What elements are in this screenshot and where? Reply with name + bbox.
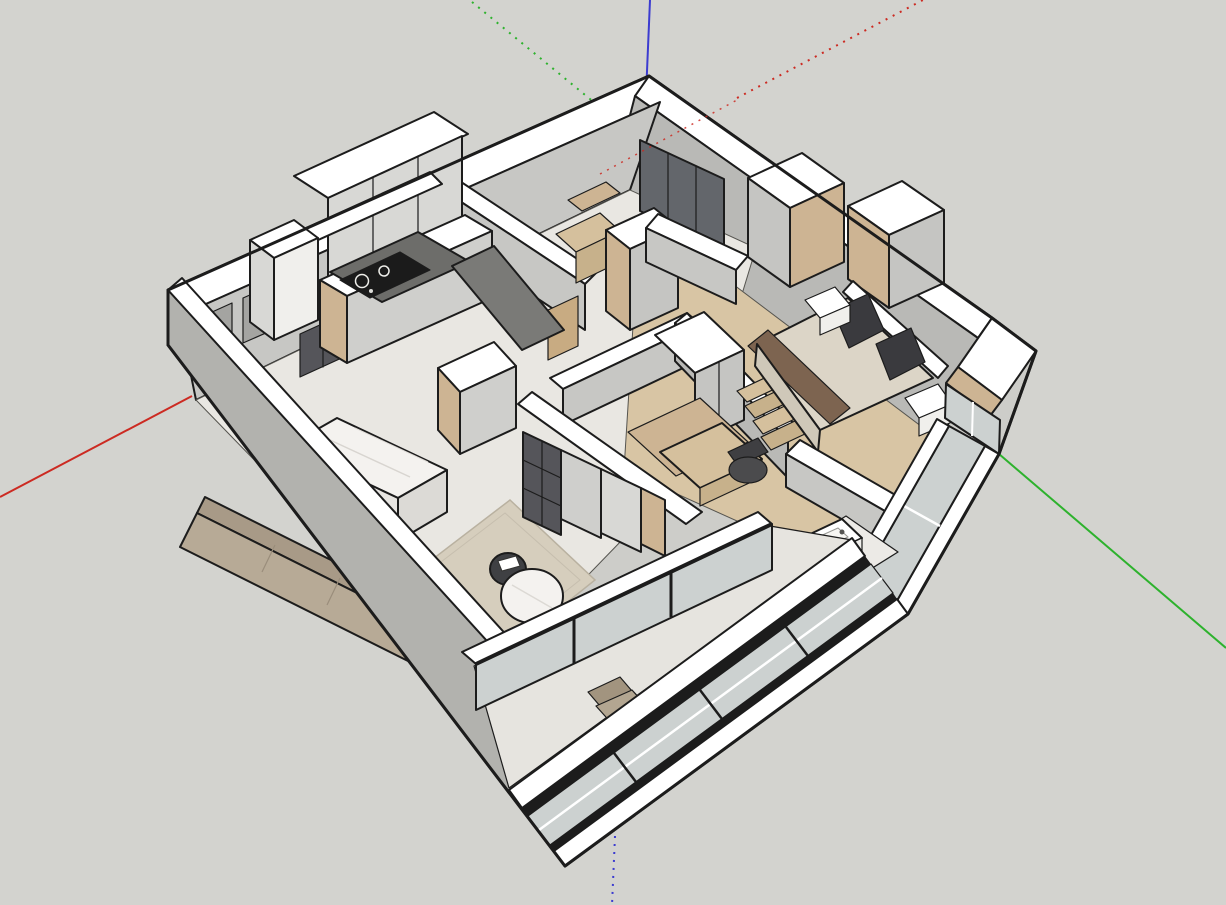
closet-side[interactable] — [606, 230, 630, 330]
base-cabinet-side[interactable] — [320, 280, 347, 363]
faucet[interactable] — [840, 530, 845, 535]
window-mullion — [972, 402, 973, 436]
pantry-side[interactable] — [250, 240, 274, 340]
modeling-viewport[interactable] — [0, 0, 1226, 905]
desk-chair[interactable] — [729, 457, 767, 483]
burner-knob — [369, 289, 373, 293]
storage-end[interactable] — [641, 488, 665, 556]
